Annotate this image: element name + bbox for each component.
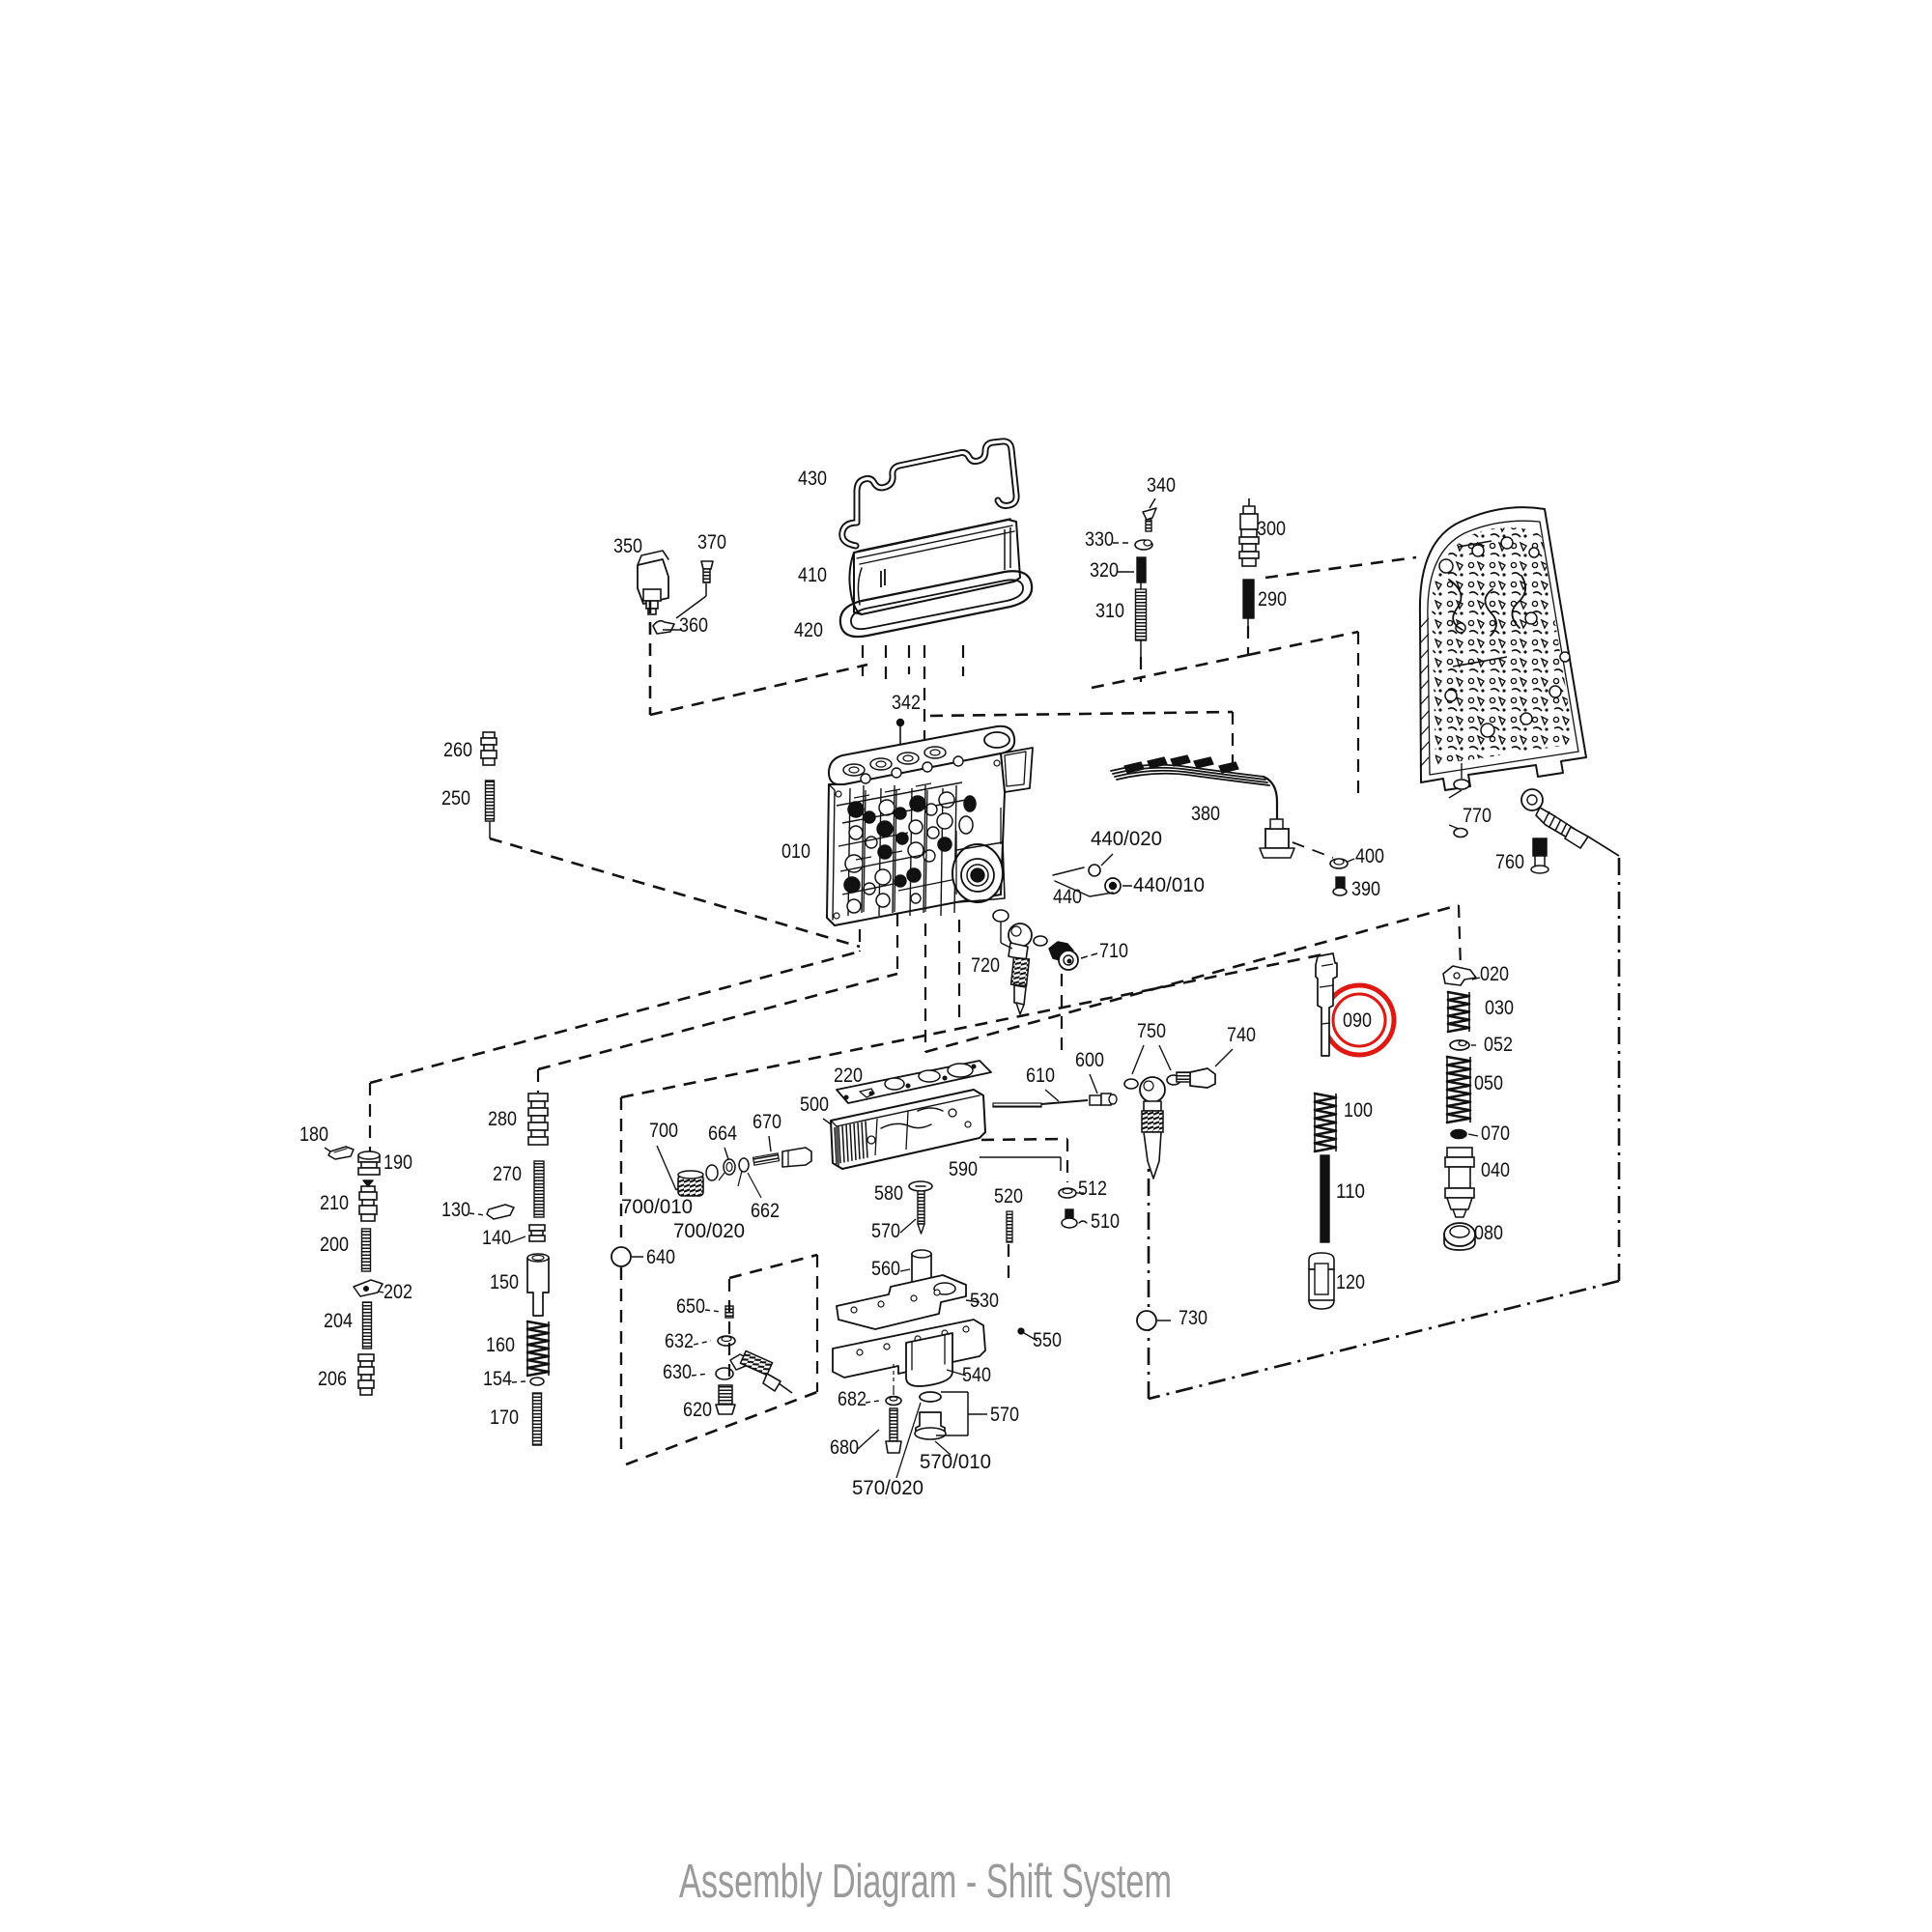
svg-text:440: 440: [1053, 886, 1082, 908]
svg-text:290: 290: [1258, 588, 1287, 611]
svg-text:570: 570: [871, 1220, 900, 1242]
svg-text:620: 620: [683, 1399, 712, 1421]
svg-text:410: 410: [798, 564, 827, 586]
svg-text:190: 190: [384, 1151, 412, 1174]
svg-text:570: 570: [990, 1404, 1019, 1426]
svg-text:090: 090: [1343, 1009, 1372, 1032]
svg-text:052: 052: [1484, 1034, 1513, 1056]
svg-text:020: 020: [1480, 963, 1509, 985]
svg-text:570/020: 570/020: [852, 1477, 923, 1499]
svg-text:340: 340: [1147, 474, 1176, 497]
svg-text:740: 740: [1227, 1024, 1256, 1046]
svg-text:050: 050: [1474, 1072, 1503, 1094]
svg-text:440/020: 440/020: [1091, 828, 1162, 850]
svg-text:154: 154: [483, 1368, 512, 1390]
svg-text:210: 210: [320, 1192, 349, 1214]
svg-text:700/010: 700/010: [621, 1196, 693, 1218]
svg-text:110: 110: [1336, 1180, 1365, 1203]
svg-text:380: 380: [1191, 803, 1220, 825]
svg-text:420: 420: [794, 619, 823, 641]
svg-text:520: 520: [994, 1185, 1023, 1207]
svg-text:750: 750: [1137, 1020, 1166, 1042]
svg-text:760: 760: [1495, 851, 1524, 873]
svg-text:540: 540: [962, 1364, 991, 1386]
svg-text:330: 330: [1085, 528, 1114, 551]
svg-text:580: 580: [874, 1182, 903, 1205]
svg-text:130: 130: [441, 1199, 470, 1221]
svg-text:350: 350: [613, 535, 642, 557]
svg-text:206: 206: [318, 1368, 347, 1390]
svg-text:530: 530: [970, 1290, 999, 1312]
svg-text:630: 630: [663, 1361, 692, 1383]
svg-text:204: 204: [324, 1310, 353, 1332]
svg-text:770: 770: [1463, 805, 1492, 827]
svg-text:730: 730: [1179, 1307, 1207, 1329]
svg-text:610: 610: [1026, 1065, 1055, 1087]
svg-text:220: 220: [834, 1065, 863, 1087]
svg-text:510: 510: [1091, 1210, 1120, 1233]
svg-text:140: 140: [482, 1227, 511, 1249]
svg-text:390: 390: [1351, 878, 1380, 900]
svg-text:500: 500: [800, 1094, 829, 1116]
svg-text:250: 250: [441, 787, 470, 810]
svg-text:700: 700: [649, 1120, 678, 1142]
svg-text:370: 370: [697, 531, 726, 554]
svg-text:662: 662: [751, 1200, 780, 1222]
svg-text:430: 430: [798, 468, 827, 490]
svg-text:440/010: 440/010: [1133, 874, 1205, 896]
svg-text:202: 202: [384, 1281, 412, 1303]
svg-text:680: 680: [830, 1436, 859, 1459]
svg-text:664: 664: [708, 1122, 737, 1145]
svg-text:710: 710: [1099, 940, 1128, 962]
svg-text:160: 160: [486, 1334, 515, 1356]
svg-text:632: 632: [665, 1330, 694, 1352]
svg-text:080: 080: [1474, 1222, 1503, 1244]
svg-text:300: 300: [1257, 518, 1286, 540]
svg-text:570/010: 570/010: [920, 1451, 991, 1473]
svg-text:180: 180: [299, 1123, 328, 1146]
svg-text:040: 040: [1481, 1159, 1510, 1181]
svg-text:560: 560: [871, 1258, 900, 1280]
svg-text:270: 270: [493, 1163, 522, 1185]
svg-text:512: 512: [1078, 1178, 1107, 1200]
svg-text:200: 200: [320, 1234, 349, 1256]
svg-text:Assembly Diagram - Shift Syste: Assembly Diagram - Shift System: [679, 1856, 1172, 1908]
svg-text:310: 310: [1095, 600, 1124, 622]
svg-text:400: 400: [1355, 845, 1384, 867]
svg-text:030: 030: [1485, 997, 1514, 1019]
svg-text:640: 640: [646, 1246, 675, 1268]
svg-text:120: 120: [1336, 1271, 1365, 1293]
svg-text:600: 600: [1075, 1049, 1104, 1071]
svg-text:650: 650: [676, 1295, 705, 1318]
svg-text:682: 682: [838, 1388, 867, 1410]
svg-text:100: 100: [1344, 1099, 1373, 1122]
svg-text:700/020: 700/020: [673, 1220, 745, 1242]
svg-text:010: 010: [781, 840, 810, 863]
svg-text:320: 320: [1090, 559, 1119, 582]
svg-text:150: 150: [490, 1271, 519, 1293]
svg-text:260: 260: [443, 739, 472, 761]
svg-text:342: 342: [892, 692, 921, 714]
svg-text:170: 170: [490, 1406, 519, 1429]
svg-text:070: 070: [1481, 1122, 1510, 1145]
svg-text:670: 670: [753, 1111, 781, 1133]
svg-text:360: 360: [679, 614, 708, 637]
svg-text:590: 590: [949, 1158, 978, 1180]
svg-text:720: 720: [971, 954, 1000, 977]
svg-text:280: 280: [488, 1108, 517, 1130]
